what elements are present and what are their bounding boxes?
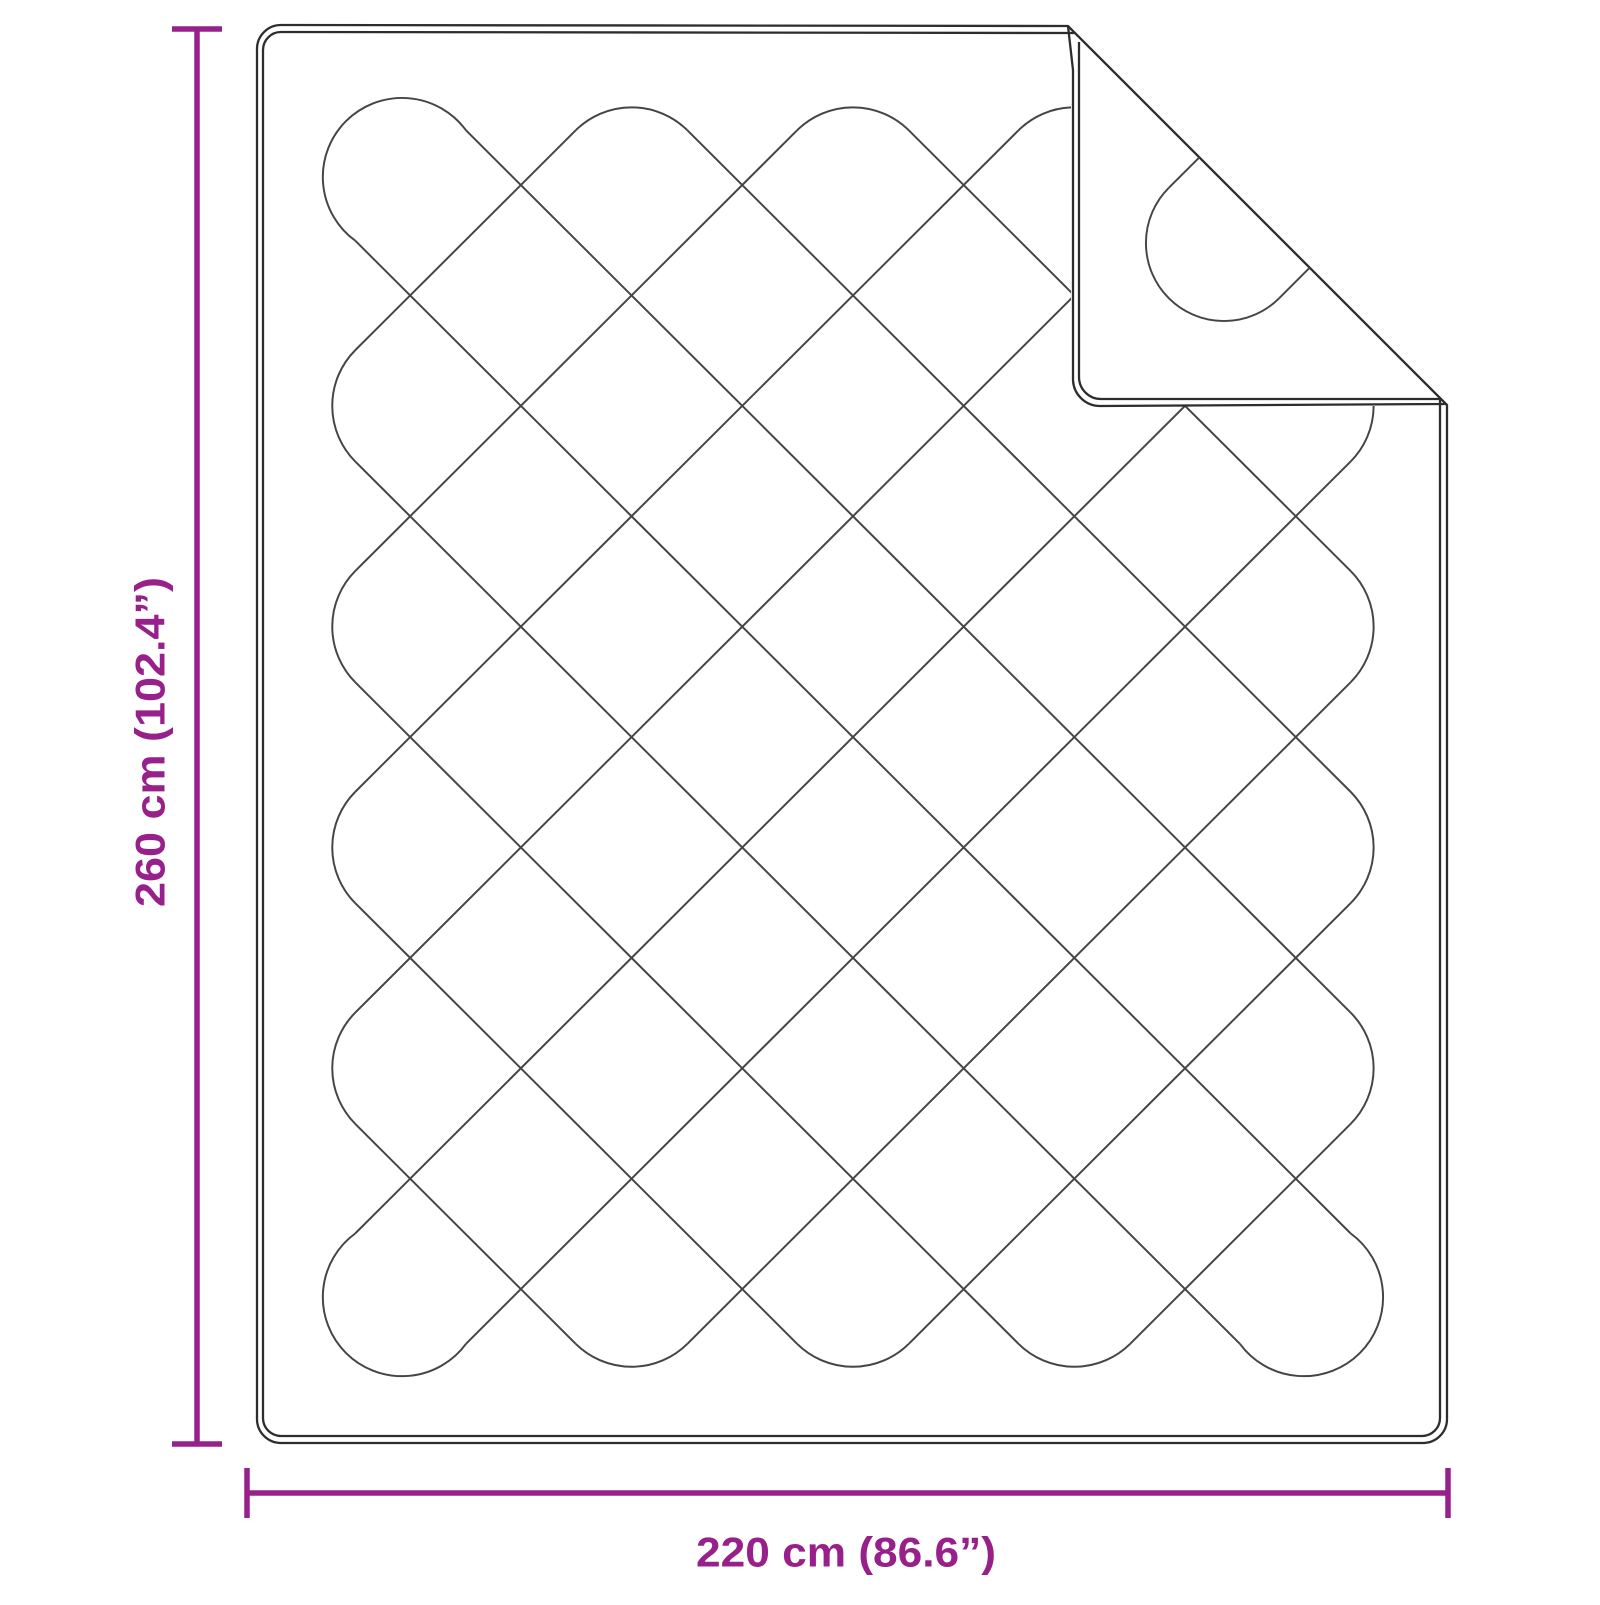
svg-text:220 cm (86.6”): 220 cm (86.6”) [696,1529,996,1576]
svg-text:260 cm (102.4”): 260 cm (102.4”) [127,577,174,907]
